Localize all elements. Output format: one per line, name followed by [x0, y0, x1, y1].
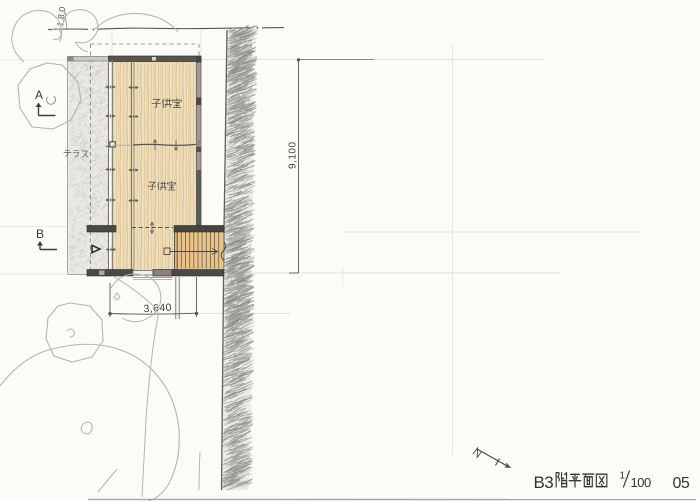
- svg-text:B: B: [36, 227, 44, 241]
- svg-text:05: 05: [673, 475, 690, 492]
- svg-text:1: 1: [620, 471, 626, 482]
- svg-text:100: 100: [631, 475, 651, 490]
- svg-text:9,100: 9,100: [288, 141, 299, 169]
- svg-text:A: A: [35, 88, 43, 102]
- svg-text:B3: B3: [534, 473, 554, 492]
